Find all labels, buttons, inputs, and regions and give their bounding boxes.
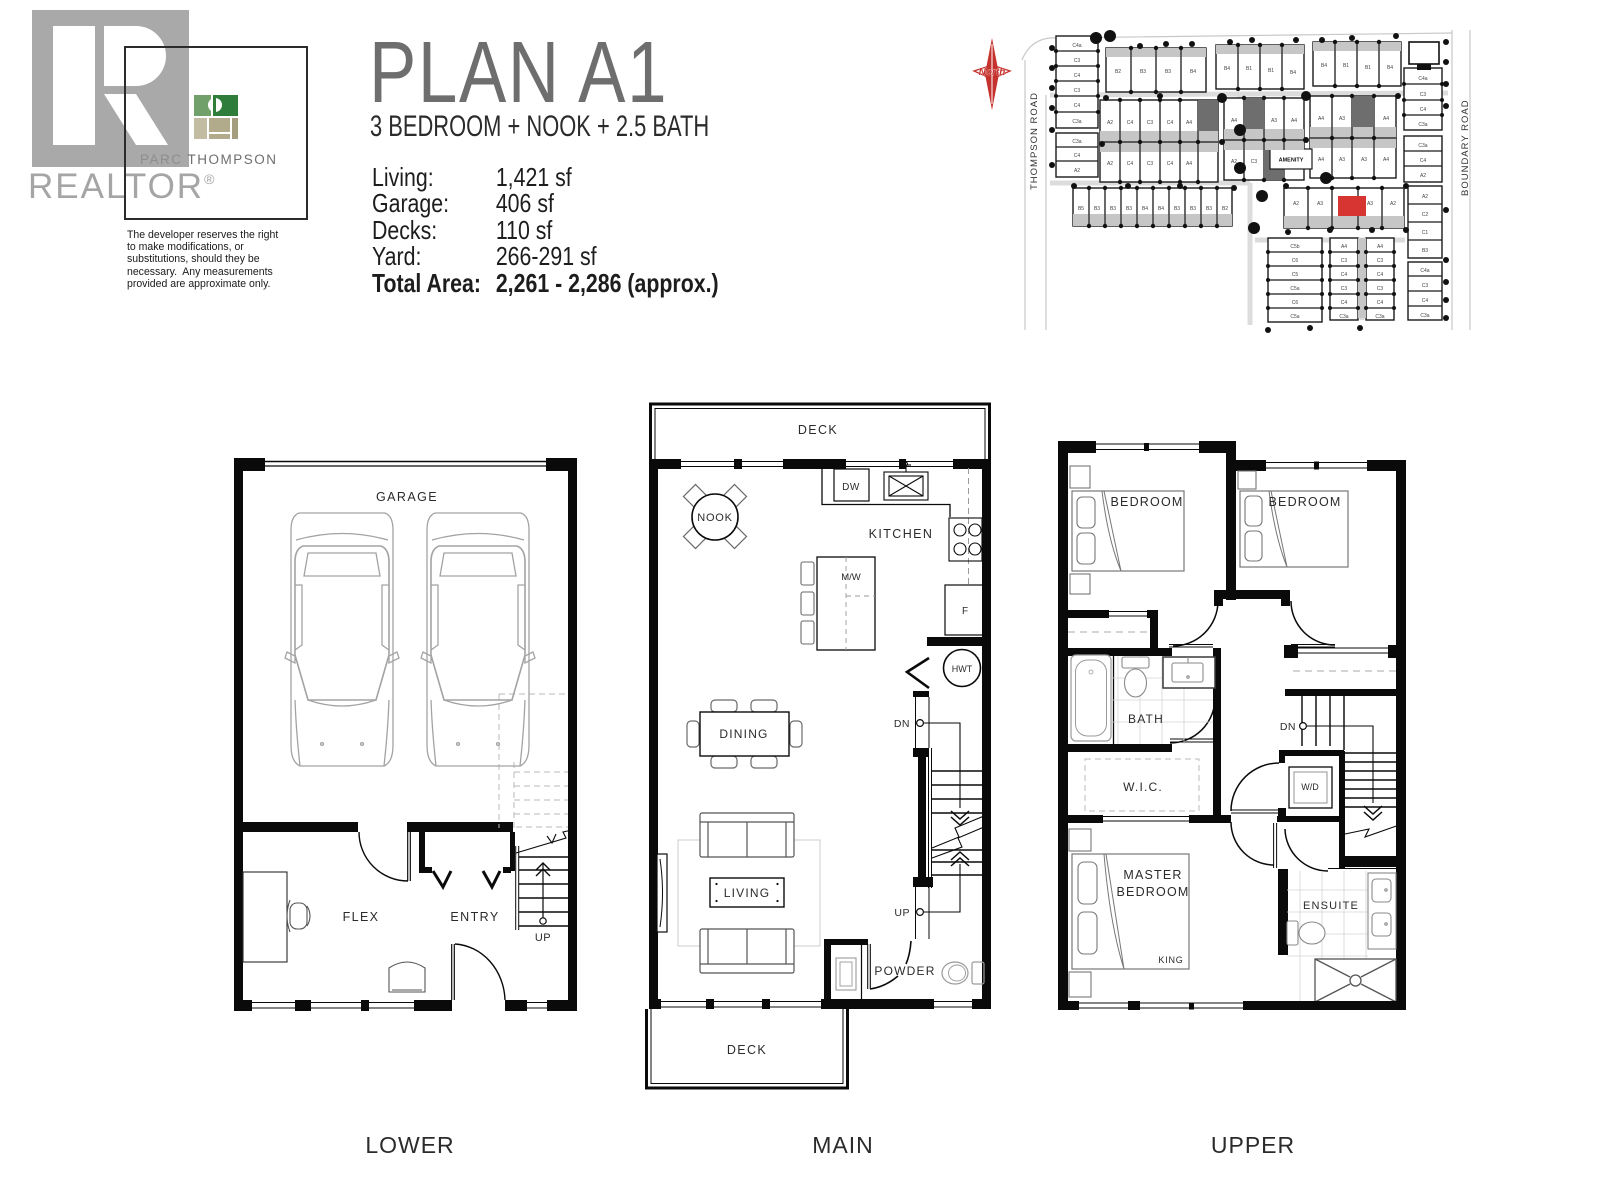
svg-text:C3a: C3a — [1418, 143, 1427, 149]
svg-text:C6: C6 — [1292, 300, 1299, 306]
svg-text:UP: UP — [894, 907, 910, 919]
svg-text:A4: A4 — [1377, 244, 1383, 250]
svg-text:C3: C3 — [1377, 258, 1384, 264]
svg-text:C3a: C3a — [1420, 313, 1429, 319]
svg-text:W.I.C.: W.I.C. — [1123, 780, 1163, 794]
svg-text:A3: A3 — [1271, 118, 1277, 124]
svg-text:C4: C4 — [1127, 161, 1134, 167]
svg-text:C3: C3 — [1147, 120, 1154, 126]
svg-text:A4: A4 — [1318, 116, 1324, 122]
svg-text:THOMPSON ROAD: THOMPSON ROAD — [1029, 92, 1040, 190]
svg-text:A4: A4 — [1186, 161, 1192, 167]
svg-text:B3: B3 — [1422, 248, 1428, 254]
svg-text:DECK: DECK — [727, 1043, 767, 1057]
svg-text:C4: C4 — [1377, 300, 1384, 306]
svg-text:C4: C4 — [1341, 300, 1348, 306]
svg-text:B3: B3 — [1110, 206, 1116, 212]
svg-text:C4: C4 — [1420, 158, 1427, 164]
svg-text:C6: C6 — [1292, 258, 1299, 264]
svg-text:POWDER: POWDER — [874, 964, 935, 978]
svg-text:DW: DW — [842, 482, 860, 493]
svg-text:B3: B3 — [1165, 69, 1171, 75]
svg-text:UP: UP — [535, 932, 551, 944]
svg-text:A3: A3 — [1367, 201, 1373, 207]
svg-text:A2: A2 — [1107, 161, 1113, 167]
svg-text:ENSUITE: ENSUITE — [1303, 900, 1359, 912]
svg-text:C4: C4 — [1074, 73, 1081, 79]
svg-text:C4: C4 — [1341, 272, 1348, 278]
svg-text:BEDROOM: BEDROOM — [1117, 885, 1190, 899]
svg-text:BATH: BATH — [1128, 712, 1164, 726]
svg-text:C4a: C4a — [1420, 268, 1429, 274]
svg-text:C2: C2 — [1422, 212, 1429, 218]
svg-text:C3: C3 — [1147, 161, 1154, 167]
svg-text:C3a: C3a — [1339, 314, 1348, 320]
svg-text:C4: C4 — [1074, 153, 1081, 159]
svg-text:A4: A4 — [1186, 120, 1192, 126]
svg-text:C4: C4 — [1420, 107, 1427, 113]
svg-text:B3: B3 — [1126, 206, 1132, 212]
svg-text:A4: A4 — [1318, 157, 1324, 163]
svg-text:B3: B3 — [1190, 206, 1196, 212]
svg-text:B4: B4 — [1387, 65, 1393, 71]
svg-text:C3a: C3a — [1375, 314, 1384, 320]
svg-text:HWT: HWT — [952, 664, 973, 674]
svg-text:C3: C3 — [1251, 159, 1258, 165]
svg-text:GARAGE: GARAGE — [376, 490, 438, 504]
svg-text:A2: A2 — [1074, 168, 1080, 174]
svg-text:A4: A4 — [1341, 244, 1347, 250]
svg-text:M/W: M/W — [841, 572, 861, 583]
svg-text:FLEX: FLEX — [343, 910, 380, 924]
svg-text:C3: C3 — [1377, 286, 1384, 292]
svg-text:B4: B4 — [1158, 206, 1164, 212]
svg-text:C3: C3 — [1341, 286, 1348, 292]
svg-text:KING: KING — [1158, 955, 1183, 965]
svg-text:DECK: DECK — [798, 423, 838, 437]
svg-text:B3: B3 — [1174, 206, 1180, 212]
svg-text:B4: B4 — [1190, 69, 1196, 75]
svg-text:C4: C4 — [1074, 103, 1081, 109]
svg-text:C4a: C4a — [1418, 76, 1427, 82]
svg-text:A2: A2 — [1107, 120, 1113, 126]
svg-text:A2: A2 — [1293, 201, 1299, 207]
svg-text:AMENITY: AMENITY — [1279, 158, 1304, 164]
svg-text:MASTER: MASTER — [1123, 868, 1182, 882]
svg-text:B2: B2 — [1222, 206, 1228, 212]
svg-text:A2: A2 — [1390, 201, 1396, 207]
svg-text:C4: C4 — [1422, 298, 1429, 304]
svg-text:B4: B4 — [1224, 66, 1230, 72]
svg-text:BEDROOM: BEDROOM — [1111, 495, 1184, 509]
svg-text:C3a: C3a — [1072, 139, 1081, 145]
svg-text:DN: DN — [1280, 721, 1296, 733]
svg-text:B3: B3 — [1094, 206, 1100, 212]
svg-text:NOOK: NOOK — [697, 512, 733, 524]
svg-text:C3a: C3a — [1072, 119, 1081, 125]
svg-text:C5: C5 — [1292, 272, 1299, 278]
svg-text:DN: DN — [894, 718, 910, 730]
svg-text:C3: C3 — [1422, 283, 1429, 289]
svg-text:C4: C4 — [1377, 272, 1384, 278]
svg-text:C3: C3 — [1074, 88, 1081, 94]
svg-text:B2: B2 — [1115, 69, 1121, 75]
svg-text:A4: A4 — [1383, 157, 1389, 163]
svg-text:BOUNDARY ROAD: BOUNDARY ROAD — [1460, 99, 1471, 196]
svg-text:B4: B4 — [1290, 70, 1296, 76]
svg-text:B1: B1 — [1246, 66, 1252, 72]
svg-text:A3: A3 — [1361, 157, 1367, 163]
svg-text:B4: B4 — [1321, 63, 1327, 69]
svg-text:C4a: C4a — [1072, 43, 1081, 49]
svg-text:A4: A4 — [1383, 116, 1389, 122]
svg-text:F: F — [962, 606, 968, 617]
svg-text:B3: B3 — [1206, 206, 1212, 212]
svg-text:B1: B1 — [1268, 68, 1274, 74]
svg-text:A2: A2 — [1420, 173, 1426, 179]
svg-text:C3a: C3a — [1418, 122, 1427, 128]
svg-text:C4: C4 — [1127, 120, 1134, 126]
svg-text:DINING: DINING — [719, 727, 768, 741]
svg-text:C3: C3 — [1420, 92, 1427, 98]
svg-text:W/D: W/D — [1301, 782, 1319, 792]
svg-text:A3: A3 — [1317, 201, 1323, 207]
svg-text:North: North — [979, 67, 1006, 78]
svg-text:A2: A2 — [1422, 194, 1428, 200]
svg-text:B5: B5 — [1078, 206, 1084, 212]
svg-text:C5a: C5a — [1290, 286, 1299, 292]
svg-text:B3: B3 — [1140, 69, 1146, 75]
svg-text:C4: C4 — [1167, 161, 1174, 167]
svg-text:A4: A4 — [1231, 118, 1237, 124]
svg-text:KITCHEN: KITCHEN — [869, 527, 934, 541]
svg-text:B1: B1 — [1365, 65, 1371, 71]
svg-text:C3: C3 — [1074, 58, 1081, 64]
svg-text:C5a: C5a — [1290, 314, 1299, 320]
svg-text:A3: A3 — [1339, 157, 1345, 163]
svg-text:A3: A3 — [1339, 116, 1345, 122]
svg-text:C3: C3 — [1341, 258, 1348, 264]
svg-text:BEDROOM: BEDROOM — [1269, 495, 1342, 509]
svg-text:ENTRY: ENTRY — [450, 910, 499, 924]
svg-text:C5b: C5b — [1290, 244, 1299, 250]
svg-text:LIVING: LIVING — [724, 886, 771, 900]
svg-text:B1: B1 — [1343, 63, 1349, 69]
svg-text:B4: B4 — [1142, 206, 1148, 212]
svg-text:C1: C1 — [1422, 230, 1429, 236]
svg-text:C4: C4 — [1167, 120, 1174, 126]
svg-text:A4: A4 — [1291, 118, 1297, 124]
